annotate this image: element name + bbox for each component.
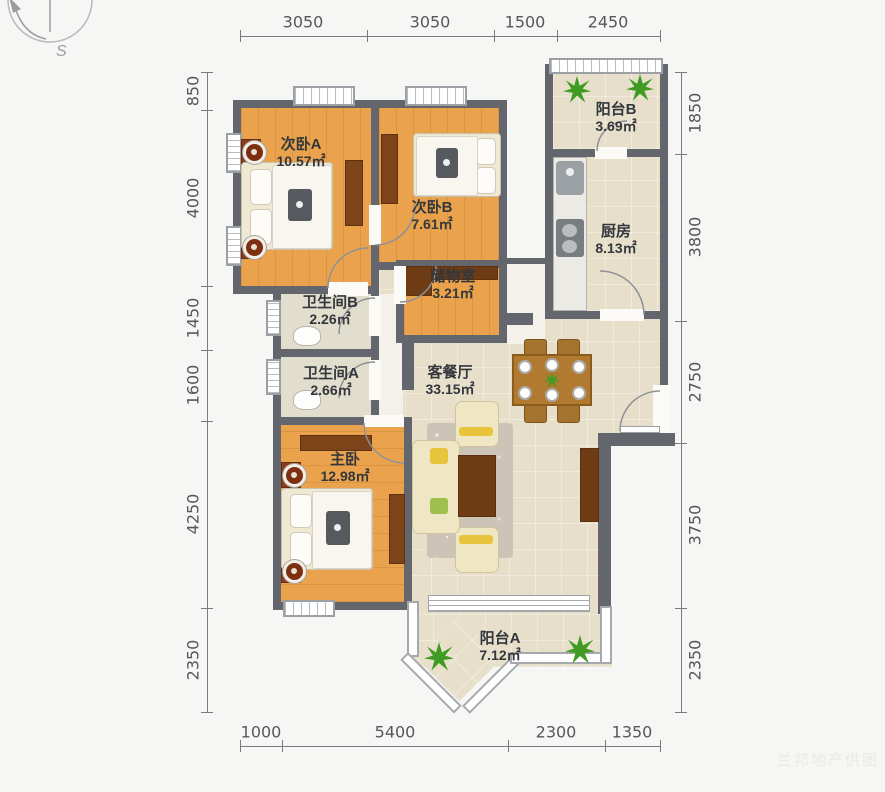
dim-line-bottom	[240, 746, 660, 747]
room-label-balcony-a: 阳台A 7.12㎡	[479, 630, 520, 664]
dim-line-left	[207, 72, 208, 712]
dim-tick	[494, 30, 495, 42]
dim-bottom-4: 1350	[612, 723, 653, 742]
room-area: 12.98㎡	[320, 468, 369, 485]
room-name: 阳台A	[480, 630, 521, 647]
compass-arrowhead	[9, 0, 21, 13]
dim-tick	[282, 740, 283, 752]
door-arc-master	[364, 423, 404, 463]
room-label-kitchen: 厨房 8.13㎡	[595, 223, 636, 257]
dim-tick	[675, 608, 687, 609]
dim-tick	[605, 740, 606, 752]
dim-tick	[201, 421, 213, 422]
dim-tick	[675, 154, 687, 155]
room-area: 3.69㎡	[595, 118, 636, 135]
room-area: 10.57㎡	[276, 153, 325, 170]
dim-right-2: 3800	[686, 217, 705, 258]
dim-tick	[675, 321, 687, 322]
dim-tick	[675, 443, 687, 444]
room-label-bedroom-b: 次卧B 7.61㎡	[411, 199, 452, 233]
room-name: 储物室	[430, 268, 475, 285]
room-name: 客餐厅	[427, 364, 472, 381]
dim-right-1: 1850	[686, 93, 705, 134]
room-label-living: 客餐厅 33.15㎡	[425, 364, 474, 398]
plant-icon	[563, 76, 591, 104]
dim-left-4: 1600	[184, 365, 203, 406]
dim-line-top	[240, 36, 660, 37]
dim-left-3: 1450	[184, 298, 203, 339]
room-area: 7.12㎡	[479, 647, 520, 664]
room-name: 次卧A	[281, 136, 322, 153]
plant-icon	[626, 74, 654, 102]
dim-bottom-1: 1000	[241, 723, 282, 742]
room-area: 2.66㎡	[303, 382, 359, 399]
dim-right-5: 2350	[686, 640, 705, 681]
dim-right-4: 3750	[686, 505, 705, 546]
room-name: 卫生间A	[303, 365, 359, 382]
room-area: 8.13㎡	[595, 240, 636, 257]
room-area: 7.61㎡	[411, 216, 452, 233]
dim-top-4: 2450	[588, 13, 629, 32]
floor-plan: S	[0, 0, 885, 792]
dim-tick	[201, 110, 213, 111]
dim-tick	[201, 286, 213, 287]
plant-icon	[565, 635, 595, 665]
door-arc-bedroom-b	[375, 205, 415, 245]
room-area: 33.15㎡	[425, 381, 474, 398]
dim-top-1: 3050	[283, 13, 324, 32]
entry-door-leaf	[620, 426, 660, 433]
dim-tick	[367, 30, 368, 42]
room-area: 3.21㎡	[430, 285, 475, 302]
room-name: 阳台B	[596, 101, 637, 118]
door-arc-bedroom-a	[328, 248, 368, 288]
room-label-balcony-b: 阳台B 3.69㎡	[595, 101, 636, 135]
compass-icon: S	[0, 0, 130, 80]
dim-top-3: 1500	[505, 13, 546, 32]
room-name: 厨房	[601, 223, 631, 240]
dim-left-5: 4250	[184, 494, 203, 535]
dim-tick	[660, 30, 661, 42]
dim-right-3: 2750	[686, 362, 705, 403]
table-plant-icon	[544, 372, 560, 388]
dim-tick	[660, 740, 661, 752]
watermark: 兰邦地产供图	[777, 749, 879, 770]
dim-tick	[201, 712, 213, 713]
dim-tick	[201, 608, 213, 609]
dim-tick	[201, 350, 213, 351]
compass-south-label: S	[56, 43, 67, 60]
room-name: 卫生间B	[302, 294, 358, 311]
dim-tick	[201, 72, 213, 73]
room-name: 主卧	[330, 451, 360, 468]
room-label-master: 主卧 12.98㎡	[320, 451, 369, 485]
dim-tick	[508, 740, 509, 752]
dim-tick	[557, 30, 558, 42]
room-label-storage: 储物室 3.21㎡	[430, 268, 475, 302]
dim-tick	[240, 30, 241, 42]
room-name: 次卧B	[412, 199, 453, 216]
door-arc-entry	[620, 391, 660, 431]
room-label-bath-b: 卫生间B 2.26㎡	[302, 294, 358, 328]
dim-left-1: 850	[184, 76, 203, 107]
dim-left-6: 2350	[184, 640, 203, 681]
room-label-bath-a: 卫生间A 2.66㎡	[303, 365, 359, 399]
dim-left-2: 4000	[184, 178, 203, 219]
room-label-bedroom-a: 次卧A 10.57㎡	[276, 136, 325, 170]
dim-line-right	[681, 72, 682, 712]
dim-tick	[675, 712, 687, 713]
door-arc-kitchen	[600, 271, 644, 315]
dim-tick	[240, 740, 241, 752]
dim-tick	[675, 72, 687, 73]
dim-top-2: 3050	[410, 13, 451, 32]
dim-bottom-3: 2300	[536, 723, 577, 742]
dim-bottom-2: 5400	[375, 723, 416, 742]
room-area: 2.26㎡	[302, 311, 358, 328]
plant-icon	[424, 642, 454, 672]
